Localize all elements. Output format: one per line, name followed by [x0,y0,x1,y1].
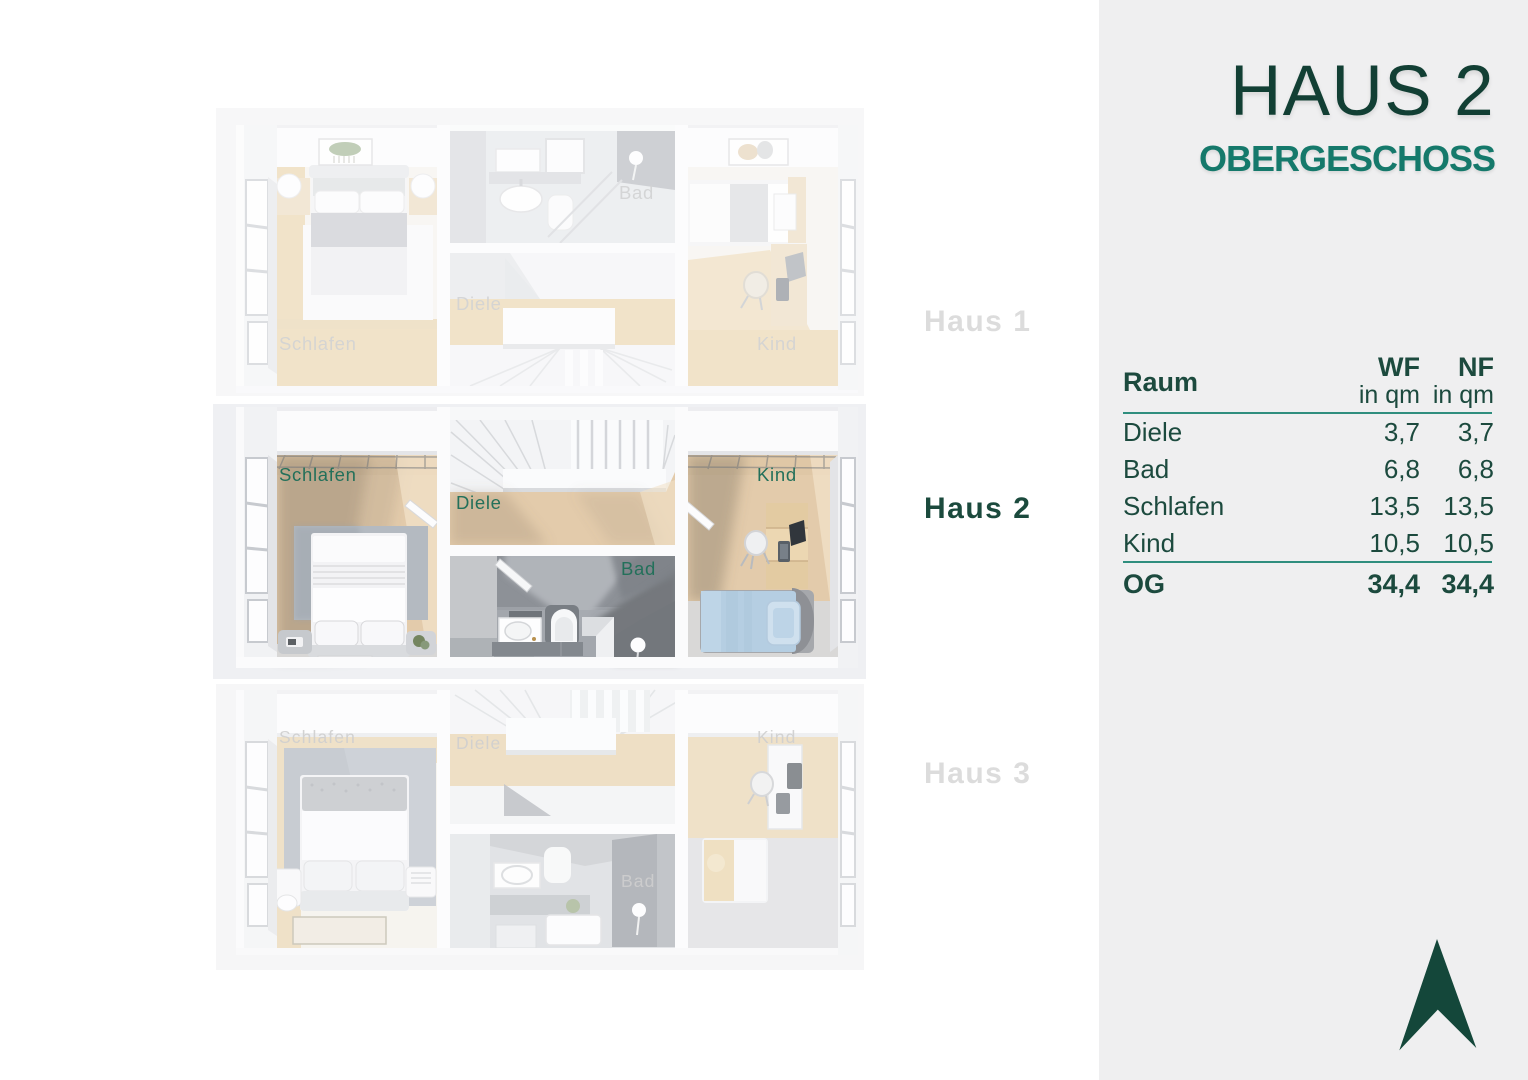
svg-text:Kind: Kind [757,333,797,354]
svg-text:Haus 1: Haus 1 [924,305,1031,338]
svg-text:Kind: Kind [757,727,796,747]
svg-text:Diele: Diele [456,492,502,513]
svg-text:Kind: Kind [757,464,797,485]
svg-text:Haus 3: Haus 3 [924,757,1031,790]
svg-text:Diele: Diele [456,293,502,314]
svg-text:Bad: Bad [621,871,655,891]
svg-text:Schlafen: Schlafen [279,464,357,485]
svg-text:Schlafen: Schlafen [279,727,356,747]
svg-text:Haus 2: Haus 2 [924,492,1031,525]
svg-text:Diele: Diele [456,733,501,753]
svg-text:Bad: Bad [619,182,654,203]
svg-text:Schlafen: Schlafen [279,333,357,354]
svg-text:Bad: Bad [621,558,656,579]
